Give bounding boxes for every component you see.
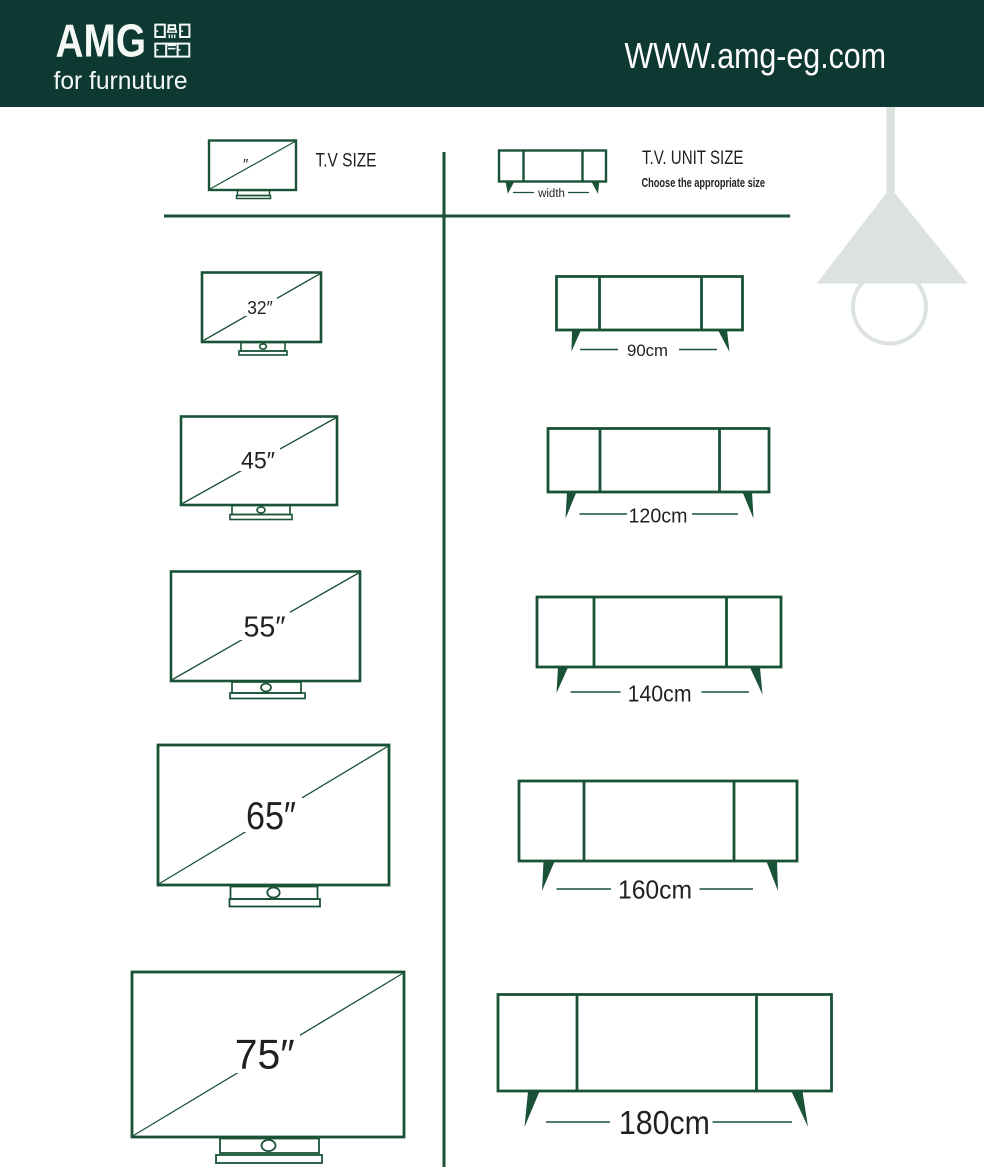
svg-text:for furnuture: for furnuture xyxy=(54,67,188,95)
svg-text:180cm: 180cm xyxy=(619,1104,710,1142)
svg-text:AMG: AMG xyxy=(56,15,147,67)
svg-text:160cm: 160cm xyxy=(618,877,692,905)
svg-text:55″: 55″ xyxy=(244,612,286,644)
svg-text:75″: 75″ xyxy=(235,1031,295,1078)
svg-text:140cm: 140cm xyxy=(628,681,692,707)
svg-text:Choose the appropriate size: Choose the appropriate size xyxy=(642,175,766,190)
svg-text:45″: 45″ xyxy=(241,448,275,475)
svg-text:65″: 65″ xyxy=(246,795,296,838)
svg-text:32″: 32″ xyxy=(247,297,273,318)
svg-text:120cm: 120cm xyxy=(629,505,688,528)
svg-text:T.V SIZE: T.V SIZE xyxy=(316,150,377,172)
svg-text:width: width xyxy=(537,188,565,200)
svg-text:90cm: 90cm xyxy=(627,341,668,360)
svg-text:WWW.amg-eg.com: WWW.amg-eg.com xyxy=(625,35,887,76)
svg-text:″: ″ xyxy=(243,156,249,173)
svg-text:T.V. UNIT SIZE: T.V. UNIT SIZE xyxy=(642,147,744,169)
